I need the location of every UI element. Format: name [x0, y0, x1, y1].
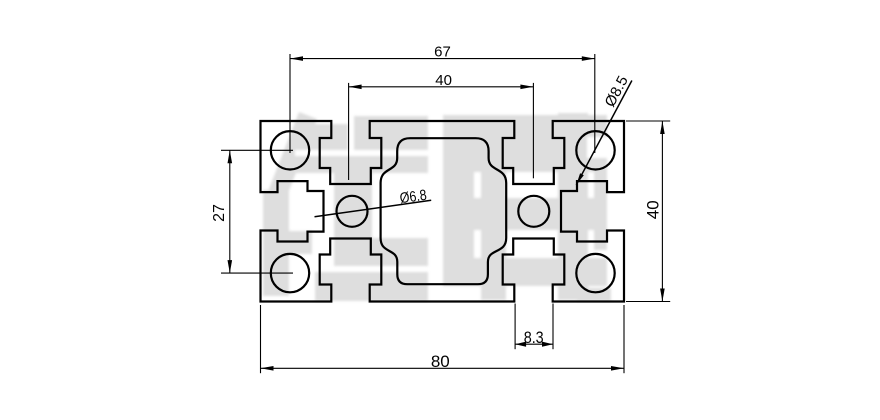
svg-text:Ø6.8: Ø6.8 [399, 187, 428, 208]
svg-text:Ø8.5: Ø8.5 [602, 73, 632, 110]
svg-text:40: 40 [644, 200, 663, 219]
svg-text:27: 27 [211, 204, 228, 222]
svg-text:67: 67 [434, 44, 451, 61]
svg-text:40: 40 [435, 72, 452, 89]
svg-text:80: 80 [431, 352, 450, 371]
svg-text:8.3: 8.3 [524, 328, 544, 347]
